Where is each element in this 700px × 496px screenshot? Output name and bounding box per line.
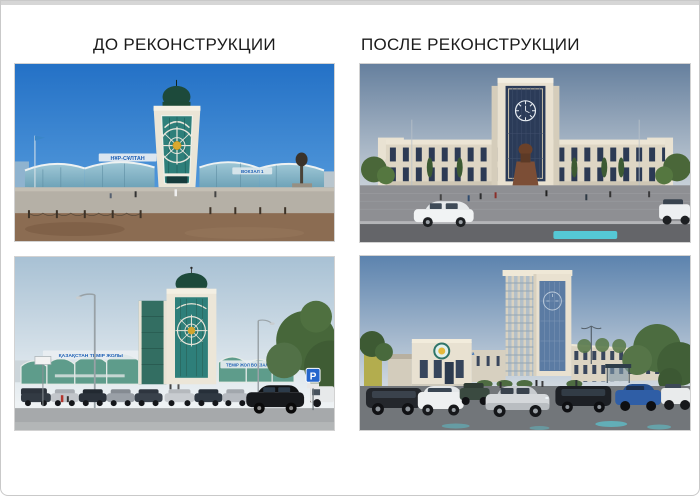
- photo-after-side-image: Астана: [360, 256, 690, 430]
- photo-before-side: ҚАЗАҚСТАН ТЕМІР ЖОЛЫ ТЕМІР ЖОЛ ВОКЗАЛЫ: [14, 256, 335, 431]
- foreground-road: [360, 224, 690, 242]
- tower-side-face: [506, 276, 534, 376]
- railway-company-sign: ҚАЗАҚСТАН ТЕМІР ЖОЛЫ: [59, 353, 123, 359]
- bus-shelter: [605, 364, 631, 383]
- photo-after-side: Астана: [359, 255, 691, 431]
- photo-before-side-image: ҚАЗАҚСТАН ТЕМІР ЖОЛЫ ТЕМІР ЖОЛ ВОКЗАЛЫ: [15, 257, 334, 430]
- photo-after-front: [359, 63, 691, 243]
- round-emblem: [434, 344, 449, 359]
- photo-after-front-image: [360, 64, 690, 242]
- terminal-sign: ВОКЗАЛ 1: [241, 169, 264, 174]
- fountain-pool: [553, 231, 617, 239]
- photo-before-front-image: НҰР-СҰЛТАН ВОКЗАЛ 1: [15, 64, 334, 241]
- station-sign: ТЕМІР ЖОЛ ВОКЗАЛЫ: [226, 362, 272, 367]
- comparison-sheet: ДО РЕКОНСТРУКЦИИ ПОСЛЕ РЕКОНСТРУКЦИИ: [0, 0, 700, 496]
- tower: [503, 270, 573, 376]
- clock-face: [516, 101, 536, 121]
- station-name-sign: НҰР-СҰЛТАН: [111, 156, 145, 162]
- column-header-after: ПОСЛЕ РЕКОНСТРУКЦИИ: [361, 35, 580, 55]
- top-edge-strip: [1, 1, 699, 5]
- photo-before-front: НҰР-СҰЛТАН ВОКЗАЛ 1: [14, 63, 335, 242]
- parking-sign-letter: P: [310, 371, 317, 382]
- column-header-before: ДО РЕКОНСТРУКЦИИ: [93, 35, 276, 55]
